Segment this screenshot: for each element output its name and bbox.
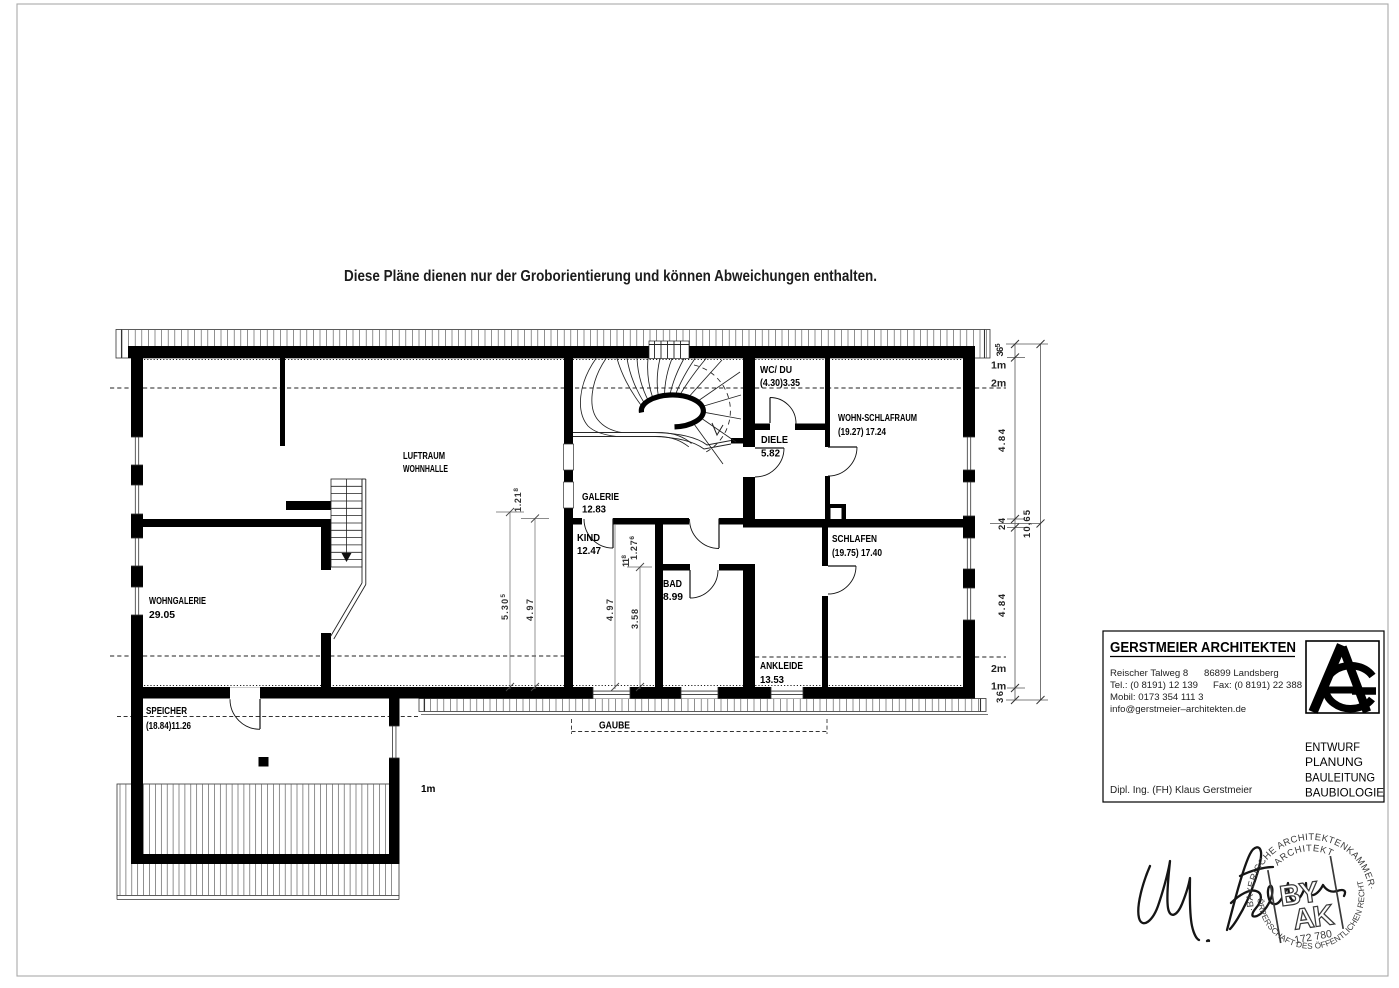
svg-text:(18.84)11.26: (18.84)11.26 <box>146 721 191 732</box>
svg-text:WOHNHALLE: WOHNHALLE <box>403 464 448 475</box>
svg-text:24: 24 <box>997 517 1008 530</box>
svg-text:LUFTRAUM: LUFTRAUM <box>403 451 445 462</box>
svg-text:BAUBIOLOGIE: BAUBIOLOGIE <box>1305 786 1384 800</box>
svg-text:29.05: 29.05 <box>149 610 175 621</box>
svg-text:12.47: 12.47 <box>577 546 601 557</box>
svg-text:info@gerstmeier–architekten.de: info@gerstmeier–architekten.de <box>1110 704 1246 715</box>
svg-text:WOHN-SCHLAFRAUM: WOHN-SCHLAFRAUM <box>838 413 917 424</box>
svg-text:WOHNGALERIE: WOHNGALERIE <box>149 596 206 607</box>
svg-text:5.82: 5.82 <box>761 449 780 460</box>
svg-text:Dipl. Ing. (FH) Klaus Gerstmei: Dipl. Ing. (FH) Klaus Gerstmeier <box>1110 785 1253 796</box>
svg-text:10,65: 10,65 <box>1022 509 1033 538</box>
svg-text:KIND: KIND <box>577 533 600 544</box>
svg-text:(4.30)3.35: (4.30)3.35 <box>760 378 800 389</box>
svg-text:BAULEITUNG: BAULEITUNG <box>1305 771 1375 785</box>
svg-text:4.84: 4.84 <box>997 593 1008 617</box>
svg-text:Diese Pläne dienen nur der Gro: Diese Pläne dienen nur der Groborientier… <box>344 268 877 285</box>
svg-text:(19.27) 17.24: (19.27) 17.24 <box>838 427 886 438</box>
svg-text:8.99: 8.99 <box>663 592 683 603</box>
svg-text:2m: 2m <box>991 378 1006 390</box>
svg-text:Fax: (0 8191) 22 388: Fax: (0 8191) 22 388 <box>1213 680 1302 691</box>
svg-text:4.97: 4.97 <box>605 599 615 621</box>
svg-text:WC/ DU: WC/ DU <box>760 365 792 376</box>
svg-text:36: 36 <box>995 691 1006 703</box>
svg-text:ANKLEIDE: ANKLEIDE <box>760 661 803 672</box>
svg-text:4.84: 4.84 <box>997 428 1008 452</box>
svg-text:DIELE: DIELE <box>761 435 788 446</box>
svg-text:2m: 2m <box>991 663 1006 675</box>
svg-text:Reischer Talweg 8: Reischer Talweg 8 <box>1110 668 1188 679</box>
svg-text:1m: 1m <box>991 681 1006 693</box>
svg-text:(19.75) 17.40: (19.75) 17.40 <box>832 548 882 559</box>
svg-text:SCHLAFEN: SCHLAFEN <box>832 534 877 545</box>
svg-text:Tel.: (0 8191) 12 139: Tel.: (0 8191) 12 139 <box>1110 680 1198 691</box>
svg-text:GERSTMEIER ARCHITEKTEN: GERSTMEIER ARCHITEKTEN <box>1110 640 1296 656</box>
svg-text:1m: 1m <box>991 360 1006 372</box>
svg-text:ENTWURF: ENTWURF <box>1305 740 1360 754</box>
svg-text:1m: 1m <box>421 784 436 795</box>
svg-text:GAUBE: GAUBE <box>599 721 630 732</box>
svg-text:4.97: 4.97 <box>525 599 535 621</box>
svg-text:86899 Landsberg: 86899 Landsberg <box>1204 668 1279 679</box>
svg-text:SPEICHER: SPEICHER <box>146 706 188 717</box>
svg-text:12.83: 12.83 <box>582 505 606 516</box>
svg-text:3.58: 3.58 <box>630 609 640 629</box>
svg-text:PLANUNG: PLANUNG <box>1305 755 1363 769</box>
svg-text:13.53: 13.53 <box>760 675 784 686</box>
svg-text:GALERIE: GALERIE <box>582 492 619 503</box>
svg-text:Mobil: 0173 354 111 3: Mobil: 0173 354 111 3 <box>1110 692 1204 703</box>
svg-text:BAD: BAD <box>663 579 682 590</box>
